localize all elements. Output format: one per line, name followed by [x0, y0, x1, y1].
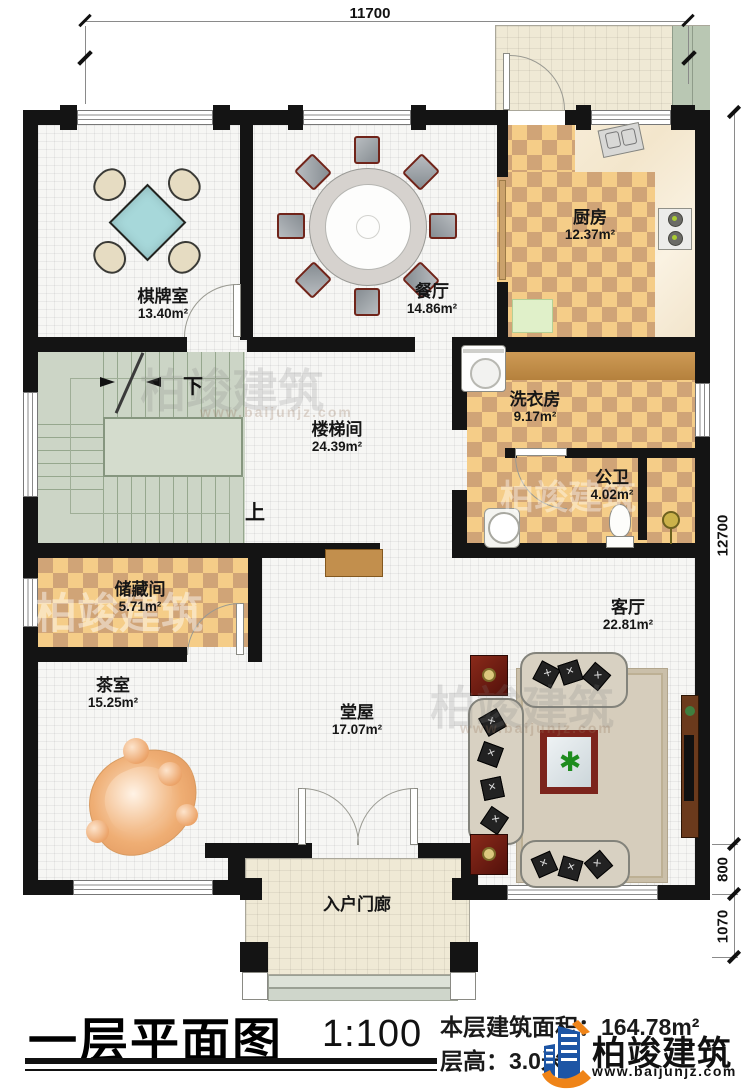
stair-up-label: 上 [245, 496, 265, 525]
wall-bath-north [565, 448, 697, 458]
floor-outdoor-green-strip [672, 26, 710, 110]
window [23, 392, 38, 497]
chair [354, 136, 380, 164]
porch-step-2 [268, 988, 458, 1001]
wall-dining-south [247, 337, 415, 352]
chair [277, 213, 305, 239]
room-label-laundry: 洗衣房9.17m² [475, 390, 595, 424]
wall-pier [288, 105, 303, 130]
dimension-top: 11700 [330, 5, 410, 22]
porch-column [240, 878, 262, 900]
stove-burner-dot [672, 216, 677, 221]
room-label-hall: 堂屋17.07m² [297, 703, 417, 737]
dimension-line-right [734, 110, 735, 958]
window [77, 110, 213, 125]
room-label-stairwell: 楼梯间24.39m² [277, 420, 397, 454]
chair [429, 213, 457, 239]
floor-kitchen [497, 125, 575, 172]
stone [176, 804, 198, 826]
brand-logo-url: www.baijunjz.com [592, 1063, 737, 1079]
stair-down-label: 下 [183, 370, 203, 399]
kitchen-sink-basin [604, 131, 621, 150]
dimension-right-mid: 800 [715, 850, 732, 890]
kitchen-sink-basin [620, 128, 637, 147]
stone [123, 738, 149, 764]
porch-step-1 [268, 975, 458, 988]
window [303, 110, 411, 125]
porch-column [452, 878, 474, 900]
extension-line [85, 26, 86, 104]
watermark-url: www.baijunjz.com [200, 404, 353, 420]
door-leaf [503, 53, 510, 110]
stone [86, 820, 109, 843]
porch-column [450, 942, 478, 972]
room-label-chess: 棋牌室13.40m² [103, 287, 223, 321]
outdoor-strip-line [692, 26, 693, 110]
door-slide [499, 180, 506, 280]
floor-porch [245, 858, 470, 975]
tv-plant [685, 706, 695, 716]
end-table-knob [482, 847, 496, 861]
washing-machine-drum [470, 358, 501, 389]
room-label-bath: 公卫4.02m² [552, 468, 672, 502]
sofa-pillow: ✕ [480, 776, 505, 801]
room-label-porch: 入户门廊 [287, 895, 427, 914]
wall-pier [411, 105, 426, 130]
floor-plan-canvas: 柏竣建筑 www.baijunjz.com 柏竣建筑 www.baijunjz.… [0, 0, 750, 1092]
plan-scale: 1:100 [322, 1013, 422, 1056]
room-label-dining: 餐厅14.86m² [372, 282, 492, 316]
title-underline-thin [25, 1069, 437, 1071]
tv-screen [684, 735, 694, 801]
washing-machine-panel [463, 349, 504, 353]
stove-burner-dot [672, 235, 677, 240]
porch-column [240, 942, 268, 972]
stair-landing [103, 417, 243, 477]
stair-arrow-right [100, 377, 115, 387]
wall-kitchen-west-upper [497, 110, 508, 177]
wall-chess-dining-divider [240, 125, 253, 340]
wall-pier [213, 105, 230, 130]
watermark-url: www.baijunjz.com [460, 720, 613, 736]
wall-porch-left [205, 843, 312, 858]
window [695, 383, 710, 437]
wall-pier [671, 105, 695, 130]
dimension-right-main: 12700 [715, 506, 732, 566]
wall-chess-south [38, 337, 187, 352]
wall-storage-east [248, 543, 262, 662]
brand-logo-icon [540, 1018, 592, 1092]
door-leaf [515, 448, 567, 456]
room-label-storage: 储藏间5.71m² [80, 580, 200, 614]
stone [158, 762, 182, 786]
wall-storage-south [23, 647, 187, 662]
shower-head [662, 511, 680, 529]
room-label-living: 客厅22.81m² [568, 598, 688, 632]
shower-stem [670, 528, 672, 544]
dining-table-center [356, 215, 380, 239]
porch-column-base [450, 972, 476, 1000]
wall-kitchen-west-lower [497, 282, 508, 352]
kitchen-mat [512, 299, 553, 333]
room-label-tea: 茶室15.25m² [53, 676, 173, 710]
console-table [325, 549, 383, 577]
wall-pier [60, 105, 77, 130]
window [73, 880, 213, 895]
toilet-tank [606, 536, 634, 548]
wall-pier [576, 105, 591, 130]
porch-column-base [242, 972, 268, 1000]
dimension-right-low: 1070 [715, 902, 732, 952]
room-label-kitchen: 厨房12.37m² [530, 208, 650, 242]
title-underline-thick [25, 1058, 437, 1064]
wall-laundry-west-lower [452, 490, 467, 543]
coffee-table-plant: ✱ [556, 748, 584, 776]
wall-left [23, 110, 38, 895]
